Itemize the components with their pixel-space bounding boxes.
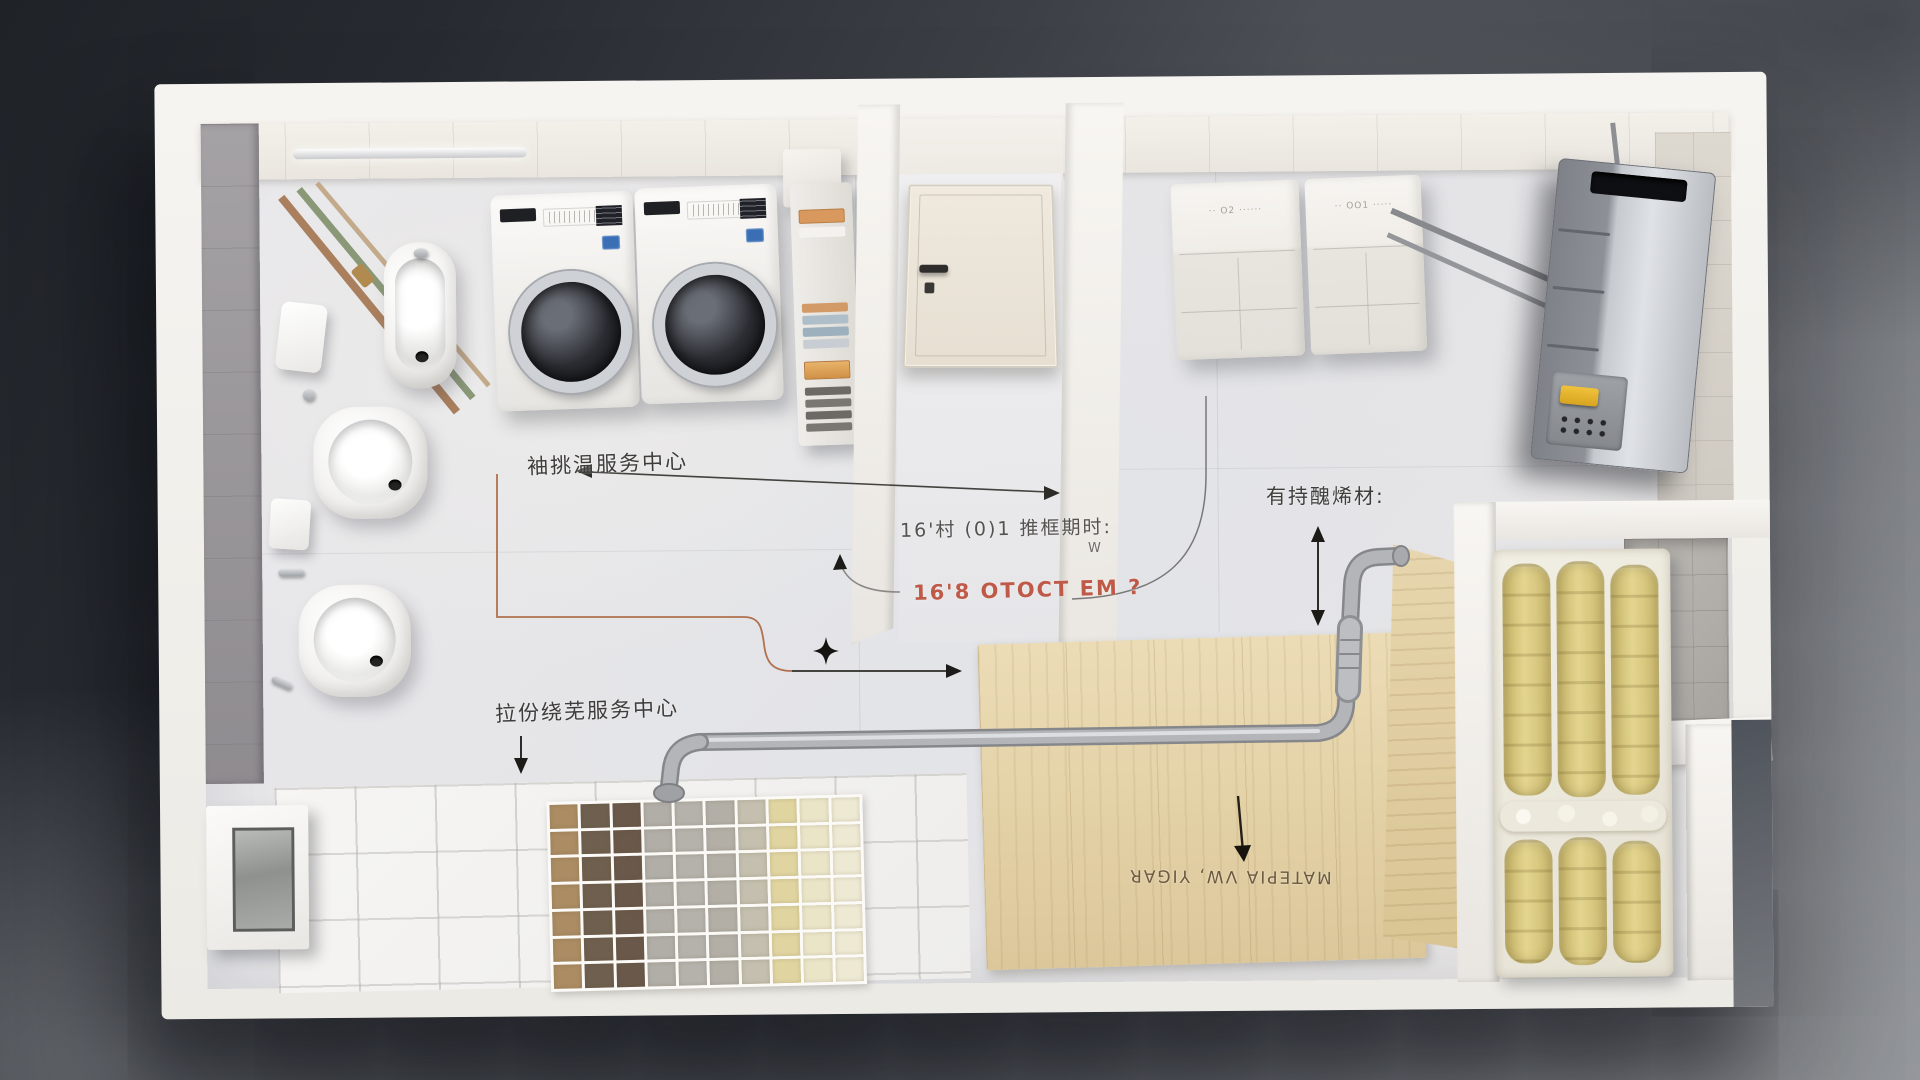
washer-energy-badge xyxy=(746,228,764,243)
shelf-item xyxy=(799,226,845,238)
tile-sample-cell xyxy=(706,800,735,824)
tile-sample-cell xyxy=(615,909,644,933)
shelf-slat xyxy=(806,422,852,432)
tile-sample-cell xyxy=(553,964,582,988)
tile-sample-cell xyxy=(585,964,614,988)
tile-sample-cell xyxy=(772,932,801,956)
background-notch xyxy=(1731,720,1773,1007)
tile-sample-cell xyxy=(675,828,704,852)
insulation-box xyxy=(1492,548,1673,977)
boiler-control-panel xyxy=(1545,370,1628,451)
tile-sample-cell xyxy=(800,825,829,849)
wall-flush-box xyxy=(268,498,311,550)
tile-sample-cell xyxy=(800,798,829,822)
tile-sample-cell xyxy=(802,905,831,929)
supply-shelf xyxy=(790,182,861,446)
shelf-slat xyxy=(806,410,852,420)
toilet-drain xyxy=(388,479,401,490)
insulation-batt xyxy=(1610,565,1660,795)
cabinet-label: ·· O2 ······ xyxy=(1171,203,1299,218)
boiler-button-grid xyxy=(1556,413,1610,440)
insulation-batt xyxy=(1502,563,1552,795)
washer-brand-badge xyxy=(644,201,680,215)
tile-sample-cell xyxy=(738,826,767,850)
tile-sample-cell xyxy=(677,908,706,932)
tile-sample-cell xyxy=(677,881,706,905)
door-handle xyxy=(919,265,948,273)
tile-sample-cell xyxy=(678,935,707,959)
tile-sample-cell xyxy=(616,963,645,987)
tile-sample-cell xyxy=(647,935,676,959)
tile-sample-cell xyxy=(553,938,582,962)
wood-floor-panel xyxy=(977,632,1426,971)
washer-display xyxy=(593,202,626,229)
shelf-label-band xyxy=(798,208,844,224)
partition-wall-right xyxy=(1058,103,1124,692)
tile-sample-cell xyxy=(551,858,580,882)
tile-sample-cell xyxy=(613,856,642,880)
tile-sample-cell xyxy=(741,960,770,984)
tile-sample-cell xyxy=(675,801,704,825)
tile-sample-cell xyxy=(550,831,579,855)
washer-display xyxy=(737,195,770,222)
insulation-batt xyxy=(1612,841,1661,963)
tile-sample-cell xyxy=(645,882,674,906)
boiler-vent xyxy=(1590,171,1688,202)
tile-sample-cell xyxy=(803,931,832,955)
tile-sample-cell xyxy=(583,884,612,908)
tile-sample-cell xyxy=(802,878,831,902)
shelf-box-orange xyxy=(804,360,851,380)
left-grey-tile-wall xyxy=(201,124,264,784)
tile-sample-cell xyxy=(737,800,766,824)
tile-sample-cell xyxy=(614,883,643,907)
tile-sample-cell xyxy=(770,852,799,876)
tile-sample-cell xyxy=(741,933,770,957)
chrome-hose xyxy=(278,569,304,576)
tile-sample-cell xyxy=(583,910,612,934)
tile-sample-cell xyxy=(676,855,705,879)
soap-dispenser xyxy=(275,301,328,374)
tile-sample-cell xyxy=(835,957,864,981)
toilet-bowl xyxy=(328,419,413,504)
wool-divider xyxy=(1500,800,1666,831)
tile-sample-cell xyxy=(740,906,769,930)
annotation-w-label: W xyxy=(1088,541,1101,556)
flush-valve xyxy=(414,248,428,258)
tile-sample-cell xyxy=(709,907,738,931)
shelf-slat xyxy=(805,386,851,396)
tile-sample-cell xyxy=(739,880,768,904)
insulation-batt xyxy=(1558,837,1607,965)
toilet-bidet-2 xyxy=(298,584,411,697)
tile-sample-cell xyxy=(643,802,672,826)
door-panel-frame xyxy=(915,195,1046,357)
tile-sample-cell xyxy=(804,958,833,982)
insulation-batt xyxy=(1504,839,1553,963)
tile-sample-cell xyxy=(679,961,708,985)
compartment-top-wall xyxy=(1454,500,1770,540)
shelf-item xyxy=(803,326,849,337)
tile-sample-cell xyxy=(768,799,797,823)
tile-sample-cell xyxy=(833,877,862,901)
ceiling-light-bar xyxy=(293,147,527,159)
urinal-drain xyxy=(415,351,428,362)
tile-sample-cell xyxy=(707,854,736,878)
tile-sample-cell xyxy=(645,855,674,879)
boiler-rail xyxy=(1547,344,1599,352)
tile-sample-cell xyxy=(615,936,644,960)
cabinet-seam xyxy=(1179,250,1295,256)
tile-sample-cell xyxy=(647,962,676,986)
tile-sample-cell xyxy=(769,825,798,849)
tile-sample-cell xyxy=(832,824,861,848)
room-shell: ·· O2 ······ ·· OO1 ····· xyxy=(154,72,1773,1020)
shelf-item xyxy=(802,314,848,325)
tile-sample-cell xyxy=(832,851,861,875)
tile-sample-cell xyxy=(834,931,863,955)
door-leaf xyxy=(903,185,1059,368)
toilet-bowl xyxy=(313,597,396,682)
tile-sample-cell xyxy=(709,934,738,958)
annotation-service-center-top: 袖挑温服务中心 xyxy=(527,445,689,481)
boiler-rail xyxy=(1552,286,1604,294)
tile-sample-cell xyxy=(551,884,580,908)
tile-sample-cell xyxy=(549,804,578,828)
washing-machine-right xyxy=(634,184,784,405)
storage-cabinet-left: ·· O2 ······ xyxy=(1170,179,1305,360)
washer-door xyxy=(652,262,778,388)
tile-sample-cell xyxy=(581,830,610,854)
tile-sample-cell xyxy=(644,829,673,853)
tile-sample-cell xyxy=(707,827,736,851)
rendered-floorplan-scene: ·· O2 ······ ·· OO1 ····· xyxy=(0,0,1920,1080)
tile-sample-cell xyxy=(739,853,768,877)
shelf-item xyxy=(803,338,849,349)
tile-sample-cell xyxy=(831,797,860,821)
tile-sample-cell xyxy=(612,803,641,827)
toilet-drain xyxy=(370,656,383,667)
mirror-cabinet xyxy=(206,805,309,950)
tile-sample-cell xyxy=(710,961,739,985)
boiler-rail xyxy=(1558,228,1610,236)
tile-sample-cell xyxy=(771,906,800,930)
cabinet-seam xyxy=(1365,253,1370,345)
boiler-yellow-button xyxy=(1559,385,1599,407)
washing-machine-left xyxy=(490,191,640,412)
chrome-fitting xyxy=(303,389,315,401)
partition-wall-left xyxy=(851,104,900,644)
tile-sample-cell xyxy=(584,937,613,961)
shelf-item xyxy=(802,302,848,313)
tile-sample-grid xyxy=(546,794,867,992)
tile-sample-cell xyxy=(552,911,581,935)
tile-sample-cell xyxy=(708,880,737,904)
urinal xyxy=(384,242,457,389)
door-lock xyxy=(924,283,934,294)
insulation-batt xyxy=(1556,561,1606,797)
annotation-service-center-bottom: 拉份绕芜服务中心 xyxy=(495,692,680,728)
annotation-wood-stamp: MATEPIA VW, YIGAR xyxy=(1128,865,1332,887)
toilet-bidet-1 xyxy=(313,406,428,519)
shelf-slat xyxy=(805,398,851,408)
mirror-glass xyxy=(232,827,295,931)
annotation-material-note: 有持醜烯材: xyxy=(1266,480,1385,509)
tile-sample-cell xyxy=(581,803,610,827)
tile-sample-cell xyxy=(770,879,799,903)
washer-energy-badge xyxy=(602,235,620,250)
washer-door xyxy=(508,269,634,395)
cabinet-seam xyxy=(1237,258,1242,350)
boiler-unit xyxy=(1530,158,1716,474)
washer-brand-badge xyxy=(500,208,536,222)
tile-sample-cell xyxy=(646,909,675,933)
tile-sample-cell xyxy=(773,959,802,983)
tile-sample-cell xyxy=(834,904,863,928)
tile-sample-cell xyxy=(582,857,611,881)
tile-sample-cell xyxy=(801,851,830,875)
annotation-dim-note: 16'村 (0)1 推框期时: xyxy=(900,512,1112,543)
tile-sample-cell xyxy=(613,829,642,853)
